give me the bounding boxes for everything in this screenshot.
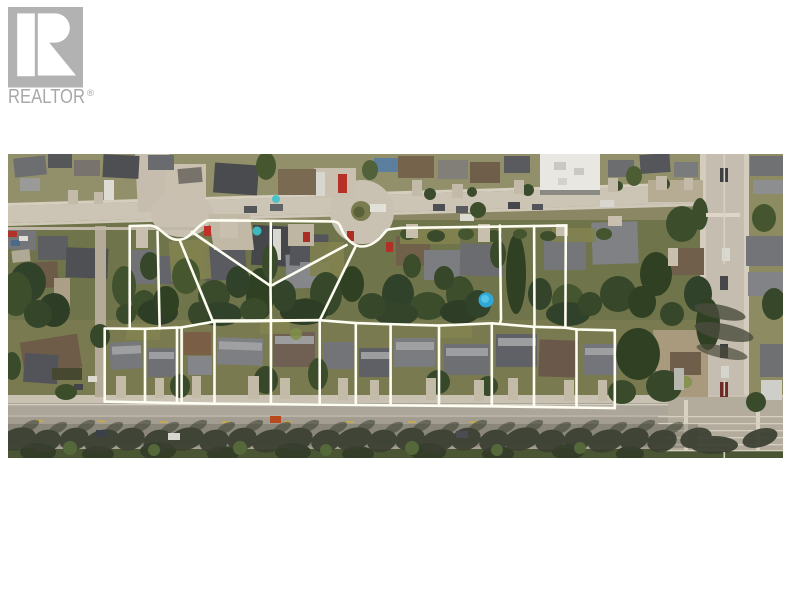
svg-text:®: ® [87, 88, 94, 99]
svg-text:REALTOR: REALTOR [8, 85, 85, 108]
